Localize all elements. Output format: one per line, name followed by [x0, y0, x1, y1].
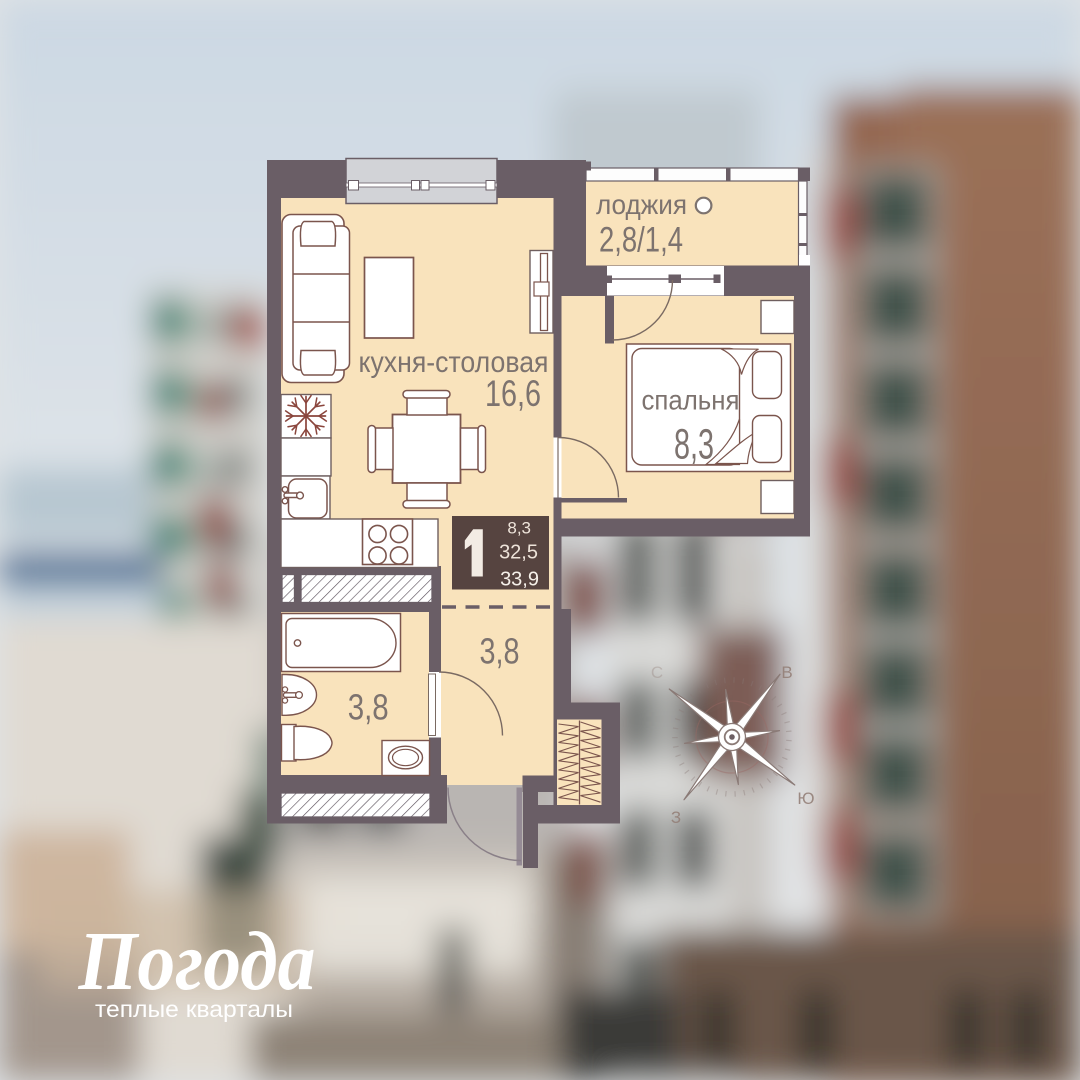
svg-text:С: С	[651, 663, 663, 682]
svg-text:32,5: 32,5	[499, 542, 538, 564]
svg-text:З: З	[671, 808, 681, 827]
svg-text:спальня: спальня	[642, 385, 740, 416]
svg-text:16,6: 16,6	[485, 373, 541, 414]
svg-text:В: В	[781, 663, 792, 682]
svg-text:2,8/1,4: 2,8/1,4	[599, 221, 683, 260]
svg-text:8,3: 8,3	[674, 421, 714, 469]
svg-text:лоджия: лоджия	[596, 189, 687, 220]
svg-text:8,3: 8,3	[507, 519, 531, 538]
svg-text:Погода: Погода	[78, 915, 316, 1008]
svg-text:3,8: 3,8	[480, 631, 520, 672]
svg-text:33,9: 33,9	[500, 569, 539, 591]
svg-text:теплые кварталы: теплые кварталы	[95, 996, 293, 1022]
svg-text:Ю: Ю	[797, 789, 814, 808]
svg-text:3,8: 3,8	[348, 687, 389, 728]
